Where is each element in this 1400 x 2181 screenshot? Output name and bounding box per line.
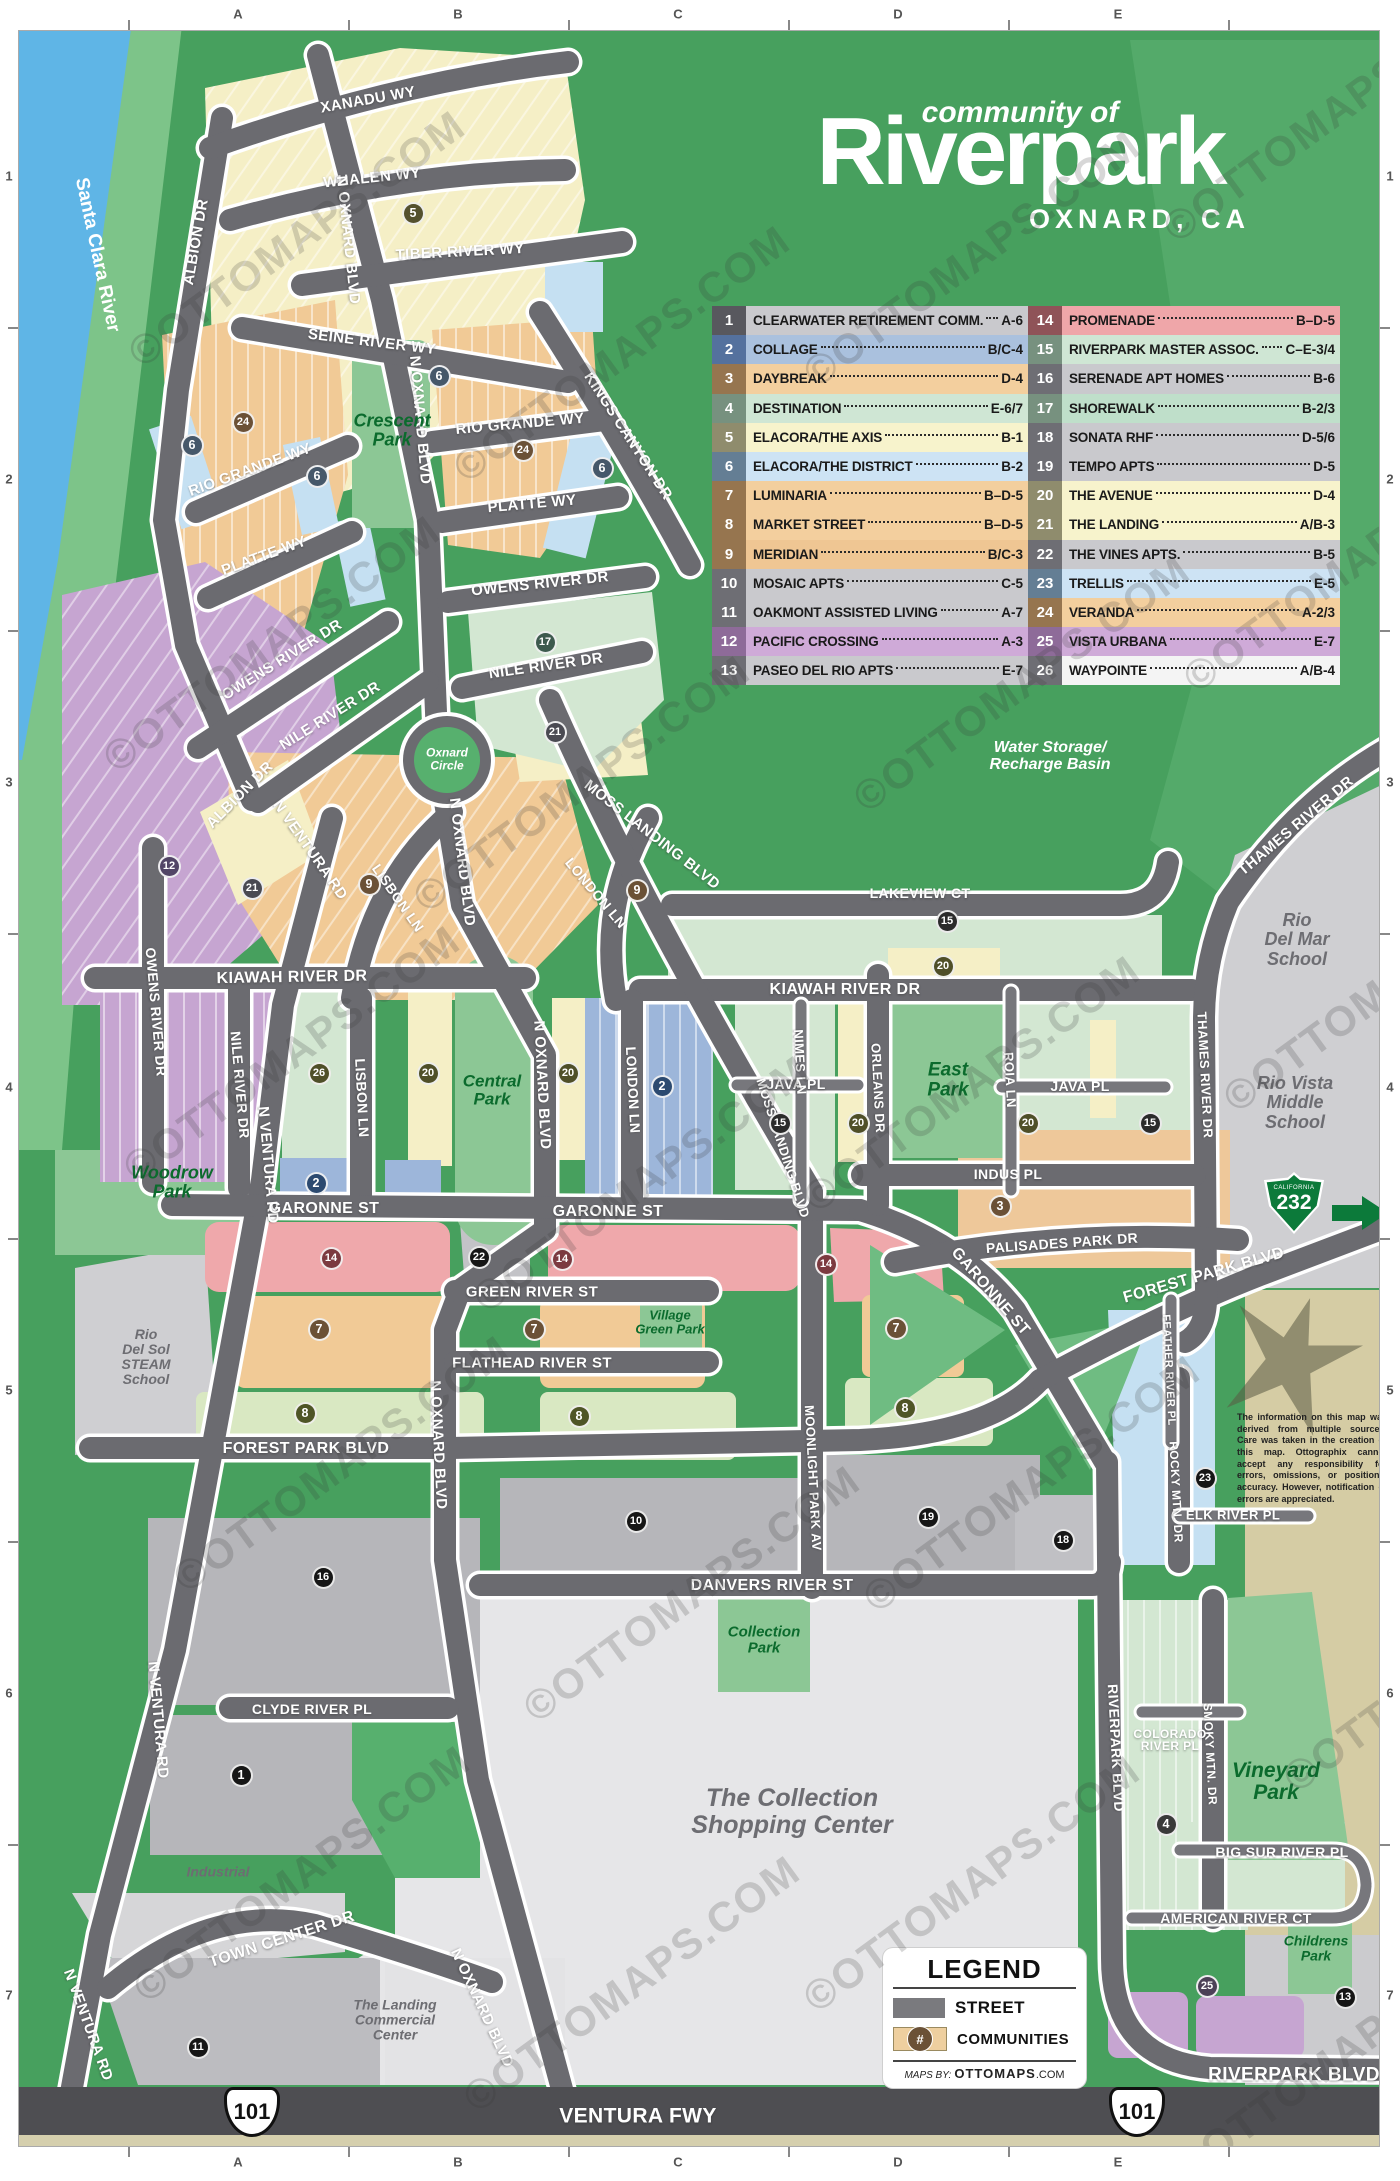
index-grid-ref: A-3 bbox=[1001, 634, 1028, 649]
index-community-name: VISTA URBANA bbox=[1062, 634, 1167, 649]
index-community-name: MERIDIAN bbox=[746, 547, 818, 562]
index-community-name: RIVERPARK MASTER ASSOC. bbox=[1062, 342, 1259, 357]
place-label-rio-vista-middle-school: Rio VistaMiddleSchool bbox=[1257, 1074, 1333, 1132]
credit-brand: OTTOMAPS bbox=[954, 2066, 1035, 2081]
grid-letter-top-E: E bbox=[1114, 7, 1123, 22]
index-row-market-street: 8MARKET STREETB–D-5 bbox=[712, 510, 1028, 539]
community-marker-11: 11 bbox=[187, 2036, 210, 2059]
grid-number-left-4: 4 bbox=[5, 1080, 12, 1095]
grid-tick bbox=[1380, 933, 1390, 935]
community-marker-15: 15 bbox=[769, 1112, 792, 1135]
index-leader-dots bbox=[1158, 405, 1299, 407]
us-101-label: 101 bbox=[234, 2099, 271, 2125]
index-grid-ref: B-1 bbox=[1001, 430, 1028, 445]
index-leader-dots bbox=[868, 521, 981, 523]
index-number: 4 bbox=[712, 394, 746, 423]
index-community-name: DESTINATION bbox=[746, 401, 841, 416]
index-row-elacora-the-district: 6ELACORA/THE DISTRICTB-2 bbox=[712, 452, 1028, 481]
index-community-name: PASEO DEL RIO APTS bbox=[746, 663, 893, 678]
community-marker-2: 2 bbox=[651, 1075, 674, 1098]
street-label-indus-pl: INDUS PL bbox=[974, 1167, 1043, 1181]
community-marker-19: 19 bbox=[917, 1506, 940, 1529]
grid-number-right-2: 2 bbox=[1386, 472, 1393, 487]
community-marker-4: 4 bbox=[1155, 1813, 1178, 1836]
index-grid-ref: B-5 bbox=[1313, 547, 1340, 562]
index-community-name: THE VINES APTS. bbox=[1062, 547, 1180, 562]
index-leader-dots bbox=[882, 638, 999, 640]
street-swatch bbox=[893, 1998, 945, 2018]
grid-tick bbox=[1380, 1844, 1390, 1846]
grid-tick bbox=[348, 2147, 350, 2157]
community-marker-5: 5 bbox=[402, 202, 425, 225]
index-number: 22 bbox=[1028, 540, 1062, 569]
index-grid-ref: B-2 bbox=[1001, 459, 1028, 474]
grid-tick bbox=[1380, 1541, 1390, 1543]
index-grid-ref: E-7 bbox=[1314, 634, 1340, 649]
index-community-name: ELACORA/THE AXIS bbox=[746, 430, 882, 445]
community-marker-13: 13 bbox=[1334, 1986, 1357, 2009]
community-marker-21: 21 bbox=[544, 721, 567, 744]
grid-number-right-1: 1 bbox=[1386, 169, 1393, 184]
community-marker-20: 20 bbox=[847, 1112, 870, 1135]
index-grid-ref: D-4 bbox=[1001, 371, 1028, 386]
index-community-name: DAYBREAK bbox=[746, 371, 827, 386]
grid-tick bbox=[8, 933, 18, 935]
community-marker-20: 20 bbox=[417, 1062, 440, 1085]
street-label-flathead-river-st: FLATHEAD RIVER ST bbox=[452, 1355, 612, 1370]
community-marker-6: 6 bbox=[181, 434, 204, 457]
index-number: 8 bbox=[712, 510, 746, 539]
street-label-clyde-river-pl: CLYDE RIVER PL bbox=[252, 1702, 372, 1716]
place-label-industrial: Industrial bbox=[186, 1864, 249, 1879]
white-label-water-storage-recharge-basin: Water Storage/Recharge Basin bbox=[990, 740, 1111, 774]
index-row-clearwater-retirement-comm: 1CLEARWATER RETIREMENT COMM.A-6 bbox=[712, 306, 1028, 335]
street-label-big-sur-river-pl: BIG SUR RIVER PL bbox=[1215, 1845, 1348, 1859]
index-grid-ref: B/C-3 bbox=[988, 547, 1028, 562]
communities-swatch: # bbox=[893, 2027, 947, 2051]
community-marker-21: 21 bbox=[241, 877, 264, 900]
grid-tick bbox=[1228, 2147, 1230, 2157]
index-leader-dots bbox=[847, 580, 998, 582]
street-label-london-ln: LONDON LN bbox=[624, 1046, 643, 1133]
index-community-name: PACIFIC CROSSING bbox=[746, 634, 879, 649]
grid-number-left-7: 7 bbox=[5, 1988, 12, 2003]
index-leader-dots bbox=[830, 375, 999, 377]
place-label-rio-del-mar-school: RioDel MarSchool bbox=[1264, 911, 1329, 969]
index-number: 12 bbox=[712, 627, 746, 656]
grid-number-right-6: 6 bbox=[1386, 1686, 1393, 1701]
community-marker-9: 9 bbox=[626, 879, 649, 902]
riverpark-community-map: community of Riverpark OXNARD, CA 1CLEAR… bbox=[0, 0, 1400, 2181]
community-marker-18: 18 bbox=[1052, 1529, 1075, 1552]
index-number: 15 bbox=[1028, 335, 1062, 364]
index-grid-ref: A/B-3 bbox=[1300, 517, 1340, 532]
street-label-roia-ln: ROIA LN bbox=[1002, 1052, 1018, 1108]
index-community-name: OAKMONT ASSISTED LIVING bbox=[746, 605, 938, 620]
index-number: 18 bbox=[1028, 423, 1062, 452]
grid-tick bbox=[1380, 630, 1390, 632]
index-number: 21 bbox=[1028, 510, 1062, 539]
index-row-pacific-crossing: 12PACIFIC CROSSINGA-3 bbox=[712, 627, 1028, 656]
index-grid-ref: A-2/3 bbox=[1302, 605, 1340, 620]
index-number: 5 bbox=[712, 423, 746, 452]
park-label-childrens-park: ChildrensPark bbox=[1284, 1933, 1349, 1962]
park-label-crescent-park: CrescentPark bbox=[353, 411, 430, 448]
index-community-name: TRELLIS bbox=[1062, 576, 1124, 591]
place-label-the-landing-commercial-center: The LandingCommercialCenter bbox=[353, 1997, 436, 2042]
us-101-label: 101 bbox=[1119, 2099, 1156, 2125]
community-marker-15: 15 bbox=[1139, 1112, 1162, 1135]
grid-tick bbox=[1008, 20, 1010, 30]
community-marker-22: 22 bbox=[468, 1246, 491, 1269]
index-grid-ref: A-6 bbox=[1001, 313, 1028, 328]
legend-box: LEGEND STREET # COMMUNITIES MAPS BY: OTT… bbox=[883, 1948, 1086, 2088]
index-row-vista-urbana: 25VISTA URBANAE-7 bbox=[1028, 627, 1340, 656]
community-marker-23: 23 bbox=[1194, 1467, 1217, 1490]
index-community-name: SHOREWALK bbox=[1062, 401, 1155, 416]
grid-tick bbox=[348, 20, 350, 30]
grid-tick bbox=[788, 20, 790, 30]
index-community-name: ELACORA/THE DISTRICT bbox=[746, 459, 913, 474]
index-number: 1 bbox=[712, 306, 746, 335]
index-number: 6 bbox=[712, 452, 746, 481]
white-label-oxnard-circle: OxnardCircle bbox=[426, 746, 468, 771]
index-row-elacora-the-axis: 5ELACORA/THE AXISB-1 bbox=[712, 423, 1028, 452]
index-number: 25 bbox=[1028, 627, 1062, 656]
index-community-name: MARKET STREET bbox=[746, 517, 865, 532]
title-oxnard-ca: OXNARD, CA bbox=[1029, 204, 1250, 235]
grid-letter-top-C: C bbox=[673, 7, 682, 22]
community-marker-7: 7 bbox=[308, 1318, 331, 1341]
index-leader-dots bbox=[1127, 580, 1311, 582]
index-number: 3 bbox=[712, 364, 746, 393]
community-marker-17: 17 bbox=[534, 631, 557, 654]
grid-tick bbox=[8, 1844, 18, 1846]
index-number: 2 bbox=[712, 335, 746, 364]
community-marker-16: 16 bbox=[312, 1566, 335, 1589]
park-label-collection-park: CollectionPark bbox=[728, 1624, 801, 1655]
credit-pre: MAPS BY: bbox=[904, 2070, 951, 2081]
index-community-name: TEMPO APTS bbox=[1062, 459, 1154, 474]
index-leader-dots bbox=[986, 317, 998, 319]
street-label-elk-river-pl: ELK RIVER PL bbox=[1186, 1508, 1280, 1521]
index-community-name: SONATA RHF bbox=[1062, 430, 1153, 445]
index-number: 23 bbox=[1028, 569, 1062, 598]
index-row-meridian: 9MERIDIANB/C-3 bbox=[712, 540, 1028, 569]
index-leader-dots bbox=[1183, 551, 1310, 553]
community-marker-9: 9 bbox=[358, 873, 381, 896]
street-label-ventura-fwy: VENTURA FWY bbox=[559, 2105, 717, 2126]
index-grid-ref: B/C-4 bbox=[988, 342, 1028, 357]
community-marker-20: 20 bbox=[1017, 1112, 1040, 1135]
index-leader-dots bbox=[1150, 667, 1297, 669]
community-marker-8: 8 bbox=[894, 1397, 917, 1420]
community-marker-10: 10 bbox=[625, 1510, 648, 1533]
index-community-name: THE AVENUE bbox=[1062, 488, 1153, 503]
index-column-2: 14PROMENADEB–D-515RIVERPARK MASTER ASSOC… bbox=[1028, 306, 1340, 685]
index-row-riverpark-master-assoc: 15RIVERPARK MASTER ASSOC.C–E-3/4 bbox=[1028, 335, 1340, 364]
index-number: 14 bbox=[1028, 306, 1062, 335]
index-row-veranda: 24VERANDAA-2/3 bbox=[1028, 598, 1340, 627]
index-grid-ref: E-6/7 bbox=[991, 401, 1028, 416]
community-marker-6: 6 bbox=[306, 465, 329, 488]
grid-tick bbox=[8, 327, 18, 329]
community-index-table: 1CLEARWATER RETIREMENT COMM.A-62COLLAGEB… bbox=[712, 306, 1340, 685]
index-row-waypointe: 26WAYPOINTEA/B-4 bbox=[1028, 656, 1340, 685]
index-leader-dots bbox=[821, 346, 985, 348]
index-grid-ref: D-5 bbox=[1313, 459, 1340, 474]
index-grid-ref: B-2/3 bbox=[1302, 401, 1340, 416]
community-marker-20: 20 bbox=[932, 955, 955, 978]
street-label-riverpark-blvd: RIVERPARK BLVD bbox=[1208, 2065, 1380, 2084]
index-grid-ref: E-7 bbox=[1002, 663, 1028, 678]
credit-tld: .COM bbox=[1036, 2069, 1065, 2081]
index-number: 9 bbox=[712, 540, 746, 569]
index-row-sonata-rhf: 18SONATA RHFD-5/6 bbox=[1028, 423, 1340, 452]
grid-letter-bottom-C: C bbox=[673, 2155, 682, 2170]
index-row-destination: 4DESTINATIONE-6/7 bbox=[712, 394, 1028, 423]
street-label-lisbon-ln: LISBON LN bbox=[353, 1058, 371, 1138]
index-row-paseo-del-rio-apts: 13PASEO DEL RIO APTSE-7 bbox=[712, 656, 1028, 685]
park-label-woodrow-park: WoodrowPark bbox=[131, 1163, 213, 1200]
index-leader-dots bbox=[885, 434, 998, 436]
street-label-garonne-st: GARONNE ST bbox=[269, 1201, 380, 1217]
grid-tick bbox=[8, 630, 18, 632]
community-marker-24: 24 bbox=[512, 439, 535, 462]
community-marker-7: 7 bbox=[523, 1318, 546, 1341]
index-grid-ref: B–D-5 bbox=[984, 517, 1028, 532]
index-number: 16 bbox=[1028, 364, 1062, 393]
grid-letter-top-B: B bbox=[453, 7, 462, 22]
place-label-rio-del-sol-steam-school: RioDel SolSTEAMSchool bbox=[122, 1327, 171, 1387]
index-number: 26 bbox=[1028, 656, 1062, 685]
index-leader-dots bbox=[844, 405, 987, 407]
index-leader-dots bbox=[1137, 609, 1299, 611]
index-grid-ref: D-5/6 bbox=[1302, 430, 1340, 445]
index-row-luminaria: 7LUMINARIAB–D-5 bbox=[712, 481, 1028, 510]
index-row-mosaic-apts: 10MOSAIC APTSC-5 bbox=[712, 569, 1028, 598]
index-community-name: PROMENADE bbox=[1062, 313, 1155, 328]
index-row-serenade-apt-homes: 16SERENADE APT HOMESB-6 bbox=[1028, 364, 1340, 393]
community-marker-1: 1 bbox=[230, 1764, 253, 1787]
grid-letter-bottom-D: D bbox=[893, 2155, 902, 2170]
legend-communities-label: COMMUNITIES bbox=[957, 2031, 1069, 2048]
index-number: 11 bbox=[712, 598, 746, 627]
street-label-green-river-st: GREEN RIVER ST bbox=[466, 1284, 598, 1299]
index-row-the-landing: 21THE LANDINGA/B-3 bbox=[1028, 510, 1340, 539]
index-number: 7 bbox=[712, 481, 746, 510]
grid-tick bbox=[128, 20, 130, 30]
index-community-name: COLLAGE bbox=[746, 342, 818, 357]
index-row-shorewalk: 17SHOREWALKB-2/3 bbox=[1028, 394, 1340, 423]
park-label-village-green-park: VillageGreen Park bbox=[635, 1308, 704, 1335]
map-disclaimer-text: The information on this map was derived … bbox=[1237, 1412, 1387, 1506]
street-label-forest-park-blvd: FOREST PARK BLVD bbox=[223, 1441, 390, 1457]
community-marker-26: 26 bbox=[308, 1062, 331, 1085]
grid-letter-top-A: A bbox=[233, 7, 242, 22]
street-label-java-pl: JAVA PL bbox=[1050, 1079, 1109, 1093]
map-margin-top bbox=[0, 0, 1400, 30]
ca-232-label: 232 bbox=[1276, 1191, 1311, 1215]
index-grid-ref: B–D-5 bbox=[984, 488, 1028, 503]
index-community-name: CLEARWATER RETIREMENT COMM. bbox=[746, 313, 983, 328]
street-label-kiawah-river-dr: KIAWAH RIVER DR bbox=[216, 969, 367, 988]
community-marker-6: 6 bbox=[591, 457, 614, 480]
index-row-tempo-apts: 19TEMPO APTSD-5 bbox=[1028, 452, 1340, 481]
index-grid-ref: A-7 bbox=[1001, 605, 1028, 620]
community-marker-8: 8 bbox=[568, 1405, 591, 1428]
grid-number-right-5: 5 bbox=[1386, 1383, 1393, 1398]
grid-tick bbox=[1380, 327, 1390, 329]
street-label-kiawah-river-dr: KIAWAH RIVER DR bbox=[770, 982, 921, 998]
index-leader-dots bbox=[1170, 638, 1311, 640]
grid-number-left-5: 5 bbox=[5, 1383, 12, 1398]
grid-tick bbox=[1380, 1238, 1390, 1240]
community-marker-12: 12 bbox=[158, 855, 181, 878]
grid-number-left-2: 2 bbox=[5, 472, 12, 487]
index-row-the-vines-apts: 22THE VINES APTS.B-5 bbox=[1028, 540, 1340, 569]
community-marker-8: 8 bbox=[294, 1402, 317, 1425]
index-number: 24 bbox=[1028, 598, 1062, 627]
index-row-daybreak: 3DAYBREAKD-4 bbox=[712, 364, 1028, 393]
index-row-collage: 2COLLAGEB/C-4 bbox=[712, 335, 1028, 364]
street-label-colorado-river-pl: COLORADORIVER PL bbox=[1133, 1728, 1206, 1752]
community-marker-14: 14 bbox=[551, 1248, 574, 1271]
index-number: 17 bbox=[1028, 394, 1062, 423]
street-label-nimes-ln: NIMES LN bbox=[792, 1029, 809, 1095]
index-community-name: MOSAIC APTS bbox=[746, 576, 844, 591]
grid-tick bbox=[8, 1541, 18, 1543]
index-row-the-avenue: 20THE AVENUED-4 bbox=[1028, 481, 1340, 510]
community-marker-15: 15 bbox=[936, 910, 959, 933]
index-leader-dots bbox=[896, 667, 999, 669]
index-leader-dots bbox=[1156, 492, 1311, 494]
community-marker-24: 24 bbox=[232, 411, 255, 434]
index-leader-dots bbox=[821, 551, 985, 553]
index-number: 20 bbox=[1028, 481, 1062, 510]
street-label-american-river-ct: AMERICAN RIVER CT bbox=[1160, 1911, 1311, 1925]
index-leader-dots bbox=[941, 609, 999, 611]
street-label-danvers-river-st: DANVERS RIVER ST bbox=[691, 1578, 854, 1594]
index-leader-dots bbox=[916, 463, 999, 465]
grid-tick bbox=[1228, 20, 1230, 30]
index-community-name: VERANDA bbox=[1062, 605, 1134, 620]
community-marker-25: 25 bbox=[1196, 1975, 1219, 1998]
index-grid-ref: D-4 bbox=[1313, 488, 1340, 503]
community-marker-6: 6 bbox=[428, 365, 451, 388]
grid-number-left-6: 6 bbox=[5, 1686, 12, 1701]
community-marker-20: 20 bbox=[557, 1062, 580, 1085]
street-label-garonne-st: GARONNE ST bbox=[553, 1204, 664, 1220]
index-community-name: SERENADE APT HOMES bbox=[1062, 371, 1224, 386]
grid-number-left-1: 1 bbox=[5, 169, 12, 184]
index-grid-ref: C-5 bbox=[1001, 576, 1028, 591]
park-label-east-park: EastPark bbox=[927, 1060, 968, 1100]
index-grid-ref: B–D-5 bbox=[1296, 313, 1340, 328]
index-grid-ref: B-6 bbox=[1313, 371, 1340, 386]
grid-number-left-3: 3 bbox=[5, 775, 12, 790]
index-leader-dots bbox=[830, 492, 981, 494]
index-leader-dots bbox=[1227, 375, 1310, 377]
community-marker-7: 7 bbox=[885, 1317, 908, 1340]
park-label-vineyard-park: VineyardPark bbox=[1232, 1760, 1320, 1804]
index-leader-dots bbox=[1158, 317, 1293, 319]
grid-tick bbox=[568, 2147, 570, 2157]
index-grid-ref: E-5 bbox=[1314, 576, 1340, 591]
legend-title: LEGEND bbox=[893, 1954, 1076, 1989]
grid-tick bbox=[568, 20, 570, 30]
grid-letter-top-D: D bbox=[893, 7, 902, 22]
community-marker-3: 3 bbox=[989, 1195, 1012, 1218]
place-label-the-collection-shopping-center: The CollectionShopping Center bbox=[691, 1785, 892, 1839]
street-label-lakeview-ct: LAKEVIEW CT bbox=[870, 886, 971, 900]
index-community-name: LUMINARIA bbox=[746, 488, 827, 503]
community-marker-14: 14 bbox=[815, 1253, 838, 1276]
grid-number-right-4: 4 bbox=[1386, 1080, 1393, 1095]
map-margin-bottom bbox=[0, 2147, 1400, 2181]
index-leader-dots bbox=[1162, 521, 1297, 523]
grid-letter-bottom-B: B bbox=[453, 2155, 462, 2170]
community-number-icon: # bbox=[907, 2026, 933, 2052]
grid-tick bbox=[128, 2147, 130, 2157]
grid-number-right-3: 3 bbox=[1386, 775, 1393, 790]
index-column-1: 1CLEARWATER RETIREMENT COMM.A-62COLLAGEB… bbox=[712, 306, 1028, 685]
community-marker-14: 14 bbox=[320, 1247, 343, 1270]
grid-tick bbox=[788, 2147, 790, 2157]
map-credit: MAPS BY: OTTOMAPS.COM bbox=[893, 2060, 1076, 2081]
index-number: 13 bbox=[712, 656, 746, 685]
index-row-trellis: 23TRELLISE-5 bbox=[1028, 569, 1340, 598]
grid-tick bbox=[1008, 2147, 1010, 2157]
community-marker-2: 2 bbox=[305, 1172, 328, 1195]
index-community-name: WAYPOINTE bbox=[1062, 663, 1147, 678]
grid-letter-bottom-E: E bbox=[1114, 2155, 1123, 2170]
index-grid-ref: A/B-4 bbox=[1300, 663, 1340, 678]
legend-street-label: STREET bbox=[955, 1998, 1025, 2018]
index-grid-ref: C–E-3/4 bbox=[1285, 342, 1340, 357]
grid-number-right-7: 7 bbox=[1386, 1988, 1393, 2003]
grid-letter-bottom-A: A bbox=[233, 2155, 242, 2170]
park-label-central-park: CentralPark bbox=[463, 1072, 522, 1107]
grid-tick bbox=[8, 1238, 18, 1240]
index-community-name: THE LANDING bbox=[1062, 517, 1159, 532]
index-leader-dots bbox=[1262, 346, 1283, 348]
title-riverpark: Riverpark bbox=[780, 104, 1260, 200]
index-number: 10 bbox=[712, 569, 746, 598]
index-leader-dots bbox=[1156, 434, 1299, 436]
index-row-promenade: 14PROMENADEB–D-5 bbox=[1028, 306, 1340, 335]
index-number: 19 bbox=[1028, 452, 1062, 481]
index-row-oakmont-assisted-living: 11OAKMONT ASSISTED LIVINGA-7 bbox=[712, 598, 1028, 627]
index-leader-dots bbox=[1157, 463, 1310, 465]
